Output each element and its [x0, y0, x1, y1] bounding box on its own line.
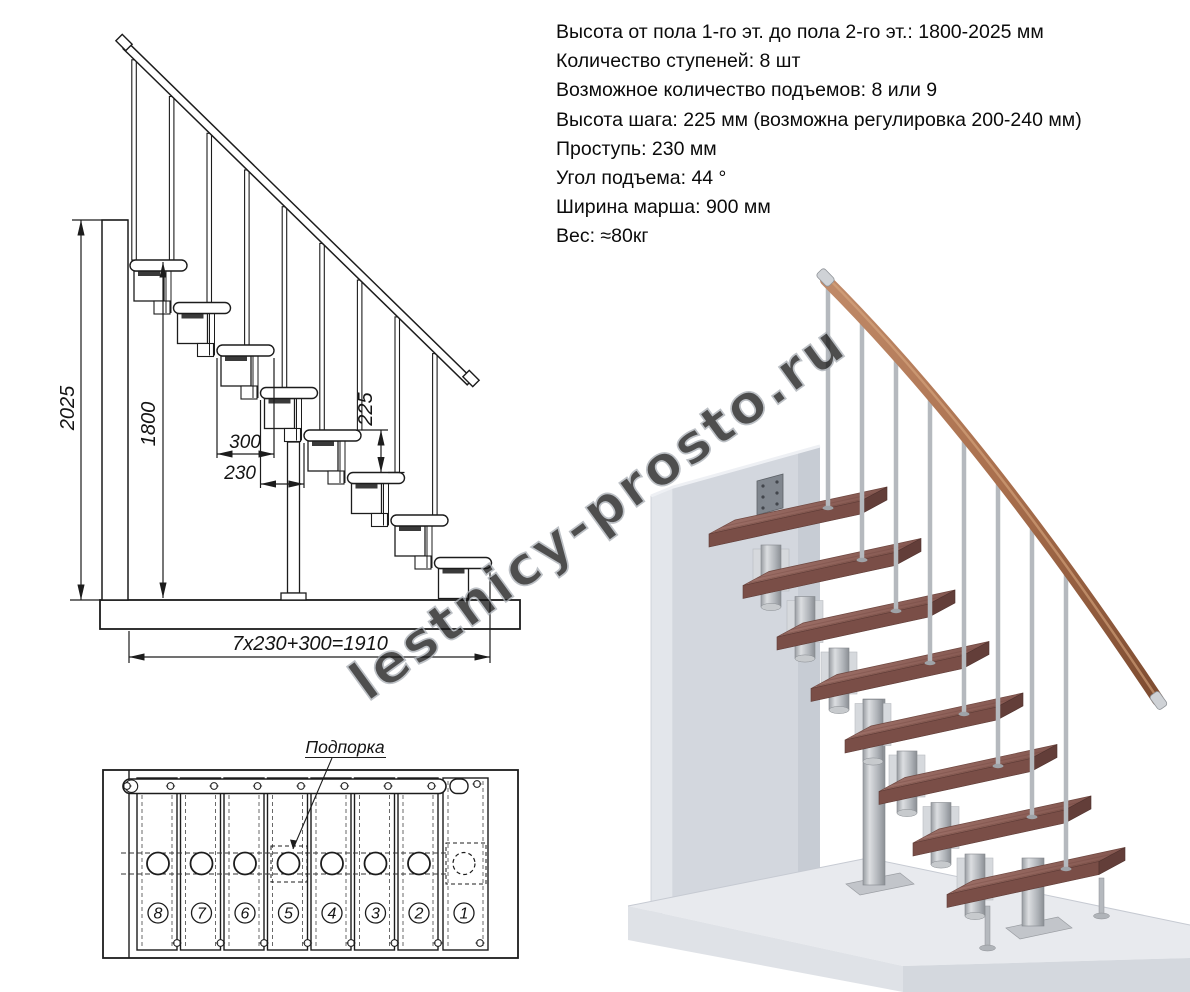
balusters-3d [823, 281, 1072, 871]
step-number: 1 [460, 906, 469, 923]
dim-run-label: 230 [223, 463, 256, 484]
handrail-3d [816, 268, 1168, 711]
step-number: 7 [197, 906, 207, 923]
spec-line-width: Ширина марша: 900 мм [556, 193, 1156, 222]
side-view-drawing: 2025 1800 300 230 225 [0, 0, 560, 700]
step-number: 5 [284, 906, 293, 923]
page-background: Высота от пола 1-го эт. до пола 2-го эт.… [0, 0, 1190, 992]
support-label: Подпорка [305, 737, 384, 757]
step-number: 8 [154, 906, 163, 923]
step-number: 3 [371, 906, 380, 923]
balusters [132, 60, 437, 515]
plan-bolts [122, 781, 484, 947]
plan-view-drawing: 8 7 6 5 4 3 2 1 Подпорка [0, 700, 560, 992]
spec-line-rise-count: Возможное количество подъемов: 8 или 9 [556, 76, 1156, 105]
wall-mount-plate [757, 474, 783, 515]
dim-total-run-label: 7x230+300=1910 [232, 633, 388, 655]
spec-line-weight: Вес: ≈80кг [556, 222, 1156, 251]
spec-line-floor-height: Высота от пола 1-го эт. до пола 2-го эт.… [556, 18, 1156, 47]
upper-floor-wall [102, 220, 128, 600]
handrail-end-cap [1149, 690, 1168, 710]
bottom-step-legs [980, 878, 1110, 951]
step-number: 2 [414, 906, 424, 923]
dim-tread-width: 300 [217, 358, 274, 458]
spec-line-step-height: Высота шага: 225 мм (возможна регулировк… [556, 106, 1156, 135]
wall [651, 446, 820, 920]
floor-slab [628, 858, 1190, 992]
dim-total-height-label: 2025 [57, 385, 79, 431]
spec-line-step-count: Количество ступеней: 8 шт [556, 47, 1156, 76]
dim-total-run: 7x230+300=1910 [129, 572, 490, 663]
dim-rise: 225 [355, 391, 405, 472]
dim-flight-height: 1800 [138, 262, 163, 598]
dim-flight-height-label: 1800 [138, 402, 160, 447]
handrail [116, 34, 479, 386]
dim-tread-width-label: 300 [229, 432, 261, 453]
plan-tread-boards [137, 778, 488, 950]
plan-support-callout: Подпорка [290, 737, 386, 849]
plan-handrail-bar [123, 779, 468, 794]
step-number: 6 [241, 906, 250, 923]
plan-support-circles [147, 843, 486, 884]
support-column [281, 442, 306, 600]
dim-total-height: 2025 [57, 220, 128, 600]
bottom-support-column [1006, 858, 1072, 939]
treads-3d [709, 487, 1125, 920]
steps [130, 260, 492, 599]
specs-panel: Высота от пола 1-го эт. до пола 2-го эт.… [556, 18, 1156, 252]
dim-run: 230 [223, 400, 304, 488]
handrail-top-cap [816, 268, 836, 288]
base-platform [100, 600, 520, 629]
watermark-text: lestnicy-prosto.ru [338, 311, 858, 713]
plan-outline [103, 770, 518, 958]
step-number: 4 [328, 906, 337, 923]
dim-rise-label: 225 [355, 391, 377, 426]
plan-centre-lines [121, 853, 447, 874]
support-column-3d [846, 699, 914, 895]
plan-step-numbers: 8 7 6 5 4 3 2 1 [148, 903, 474, 923]
spec-line-tread: Проступь: 230 мм [556, 135, 1156, 164]
spec-line-angle: Угол подъема: 44 ° [556, 164, 1156, 193]
render-3d [560, 230, 1190, 992]
